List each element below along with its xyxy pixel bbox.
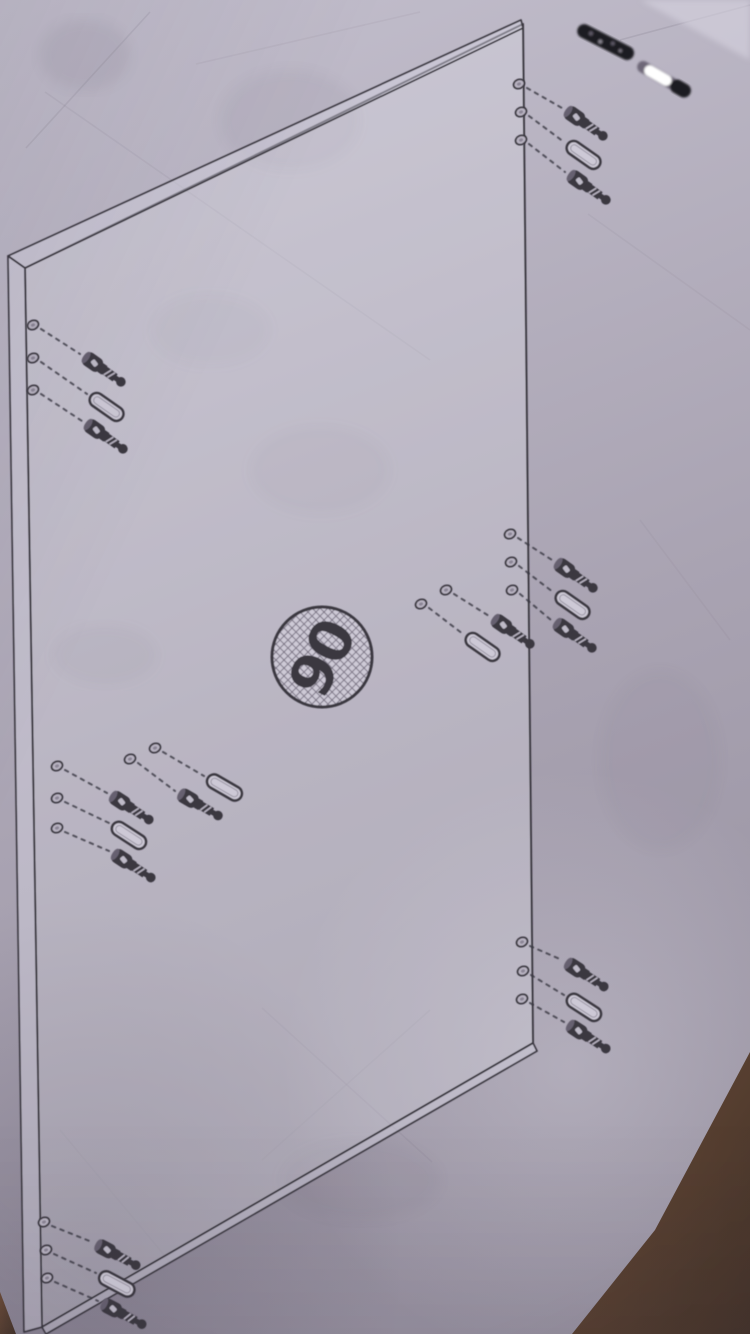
projection-dashed-line [530,1003,564,1022]
paper-crease-line [196,12,420,64]
paper-crease-line [640,520,730,640]
cam-bolt-icon [564,168,614,209]
paper-smudge [40,20,130,90]
projection-dashed-line [530,946,562,960]
cam-bolt-icon [561,955,611,995]
projection-dashed-line [529,116,564,142]
paper-crease-line [588,214,750,330]
loose-metal-screw-photo [635,58,694,100]
dowel-icon [564,138,603,171]
cam-bolt-icon [551,556,601,597]
cardboard-background [572,1052,750,1334]
part-number-badge: 90 [272,607,372,708]
cam-bolt-icon [98,1296,149,1333]
fastener-group-top-right [512,78,614,209]
cam-bolt-icon [563,1017,613,1057]
furniture-panel [8,20,537,1334]
cardboard-background [0,1292,16,1334]
paper-smudge [600,670,720,850]
projection-dashed-line [529,144,565,172]
cam-bolt-icon [561,104,611,145]
photo-of-assembly-instruction-sheet: 90 [0,0,750,1334]
dowel-icon [553,588,592,621]
projection-dashed-line [527,88,562,108]
assembly-diagram: 90 [0,0,750,1334]
cam-bolt-icon [550,616,600,657]
dowel-icon [564,991,603,1023]
loose-metal-screw-photo [575,22,637,63]
projection-dashed-line [531,975,564,995]
